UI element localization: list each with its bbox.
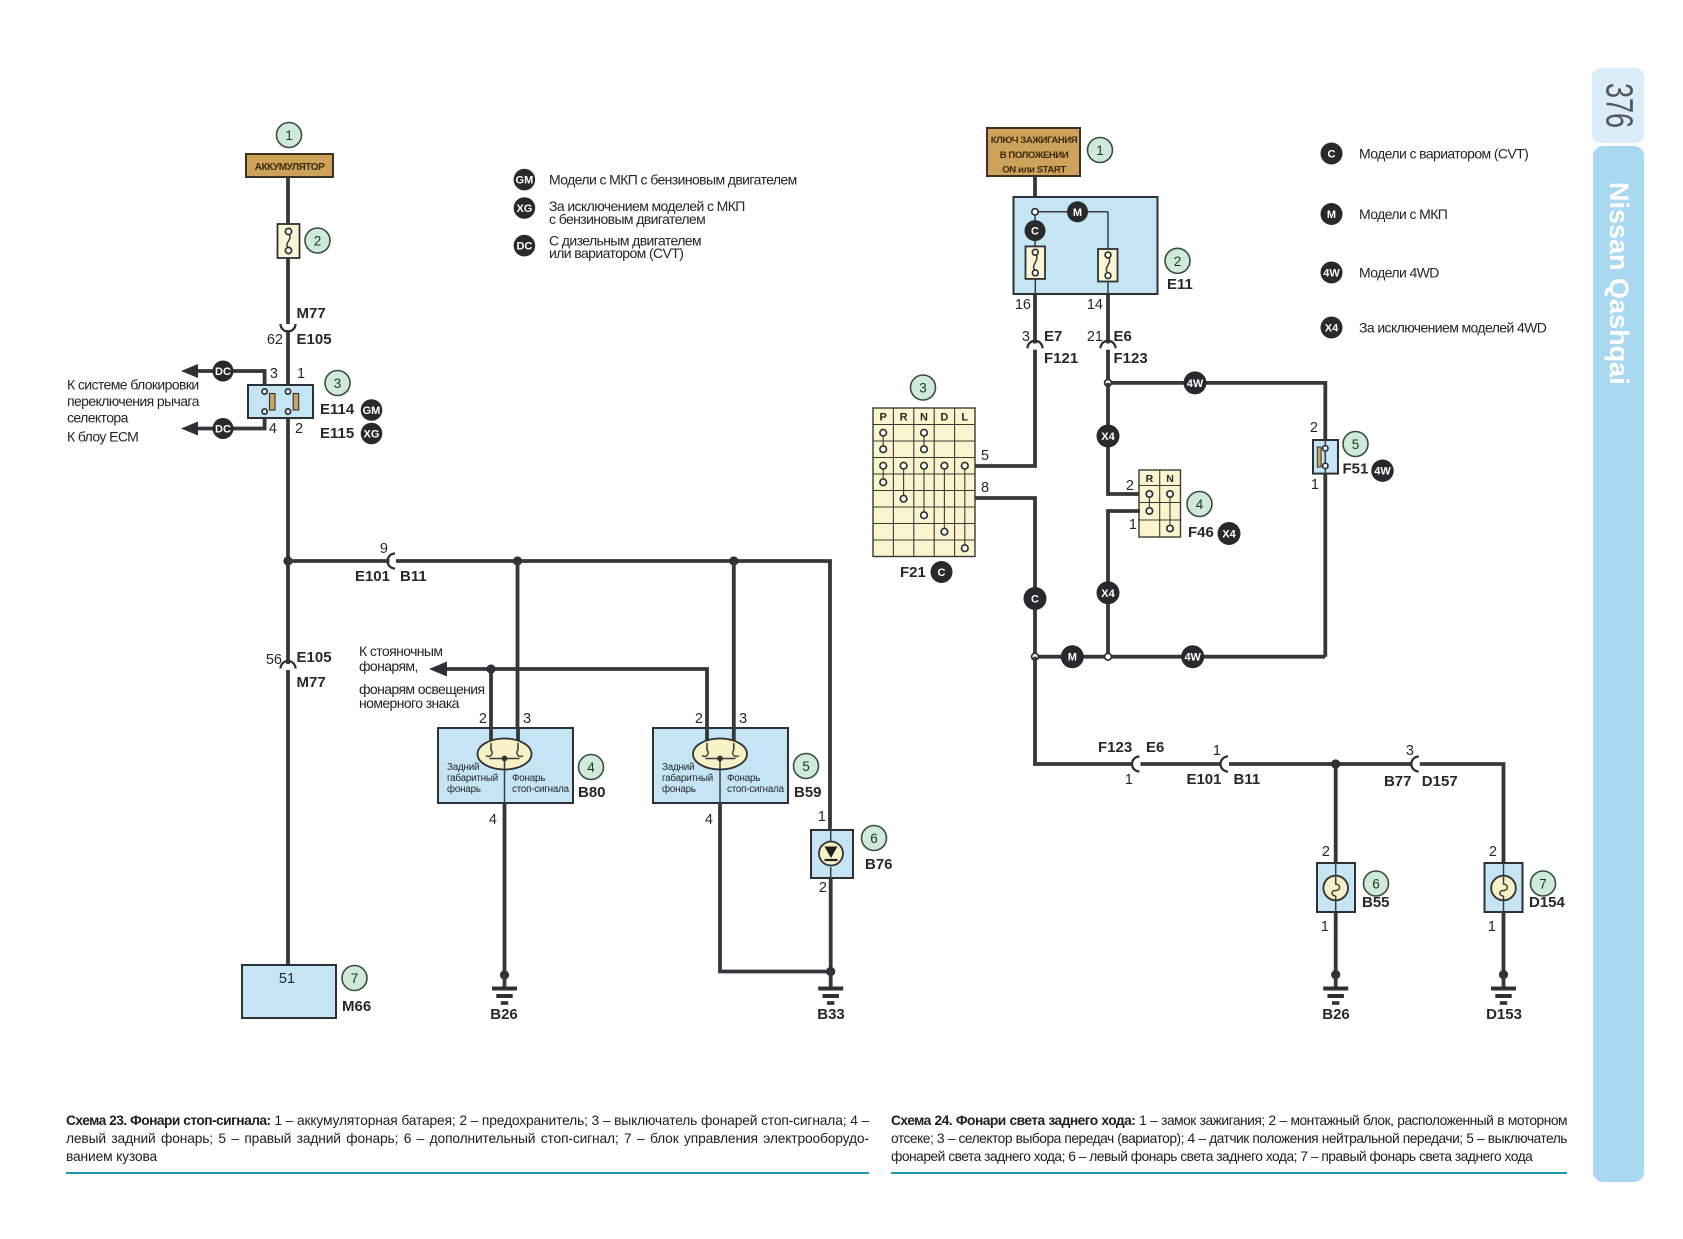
svg-text:К системе блокировки: К системе блокировки — [67, 377, 199, 393]
svg-text:62: 62 — [267, 332, 283, 348]
svg-text:N: N — [920, 412, 928, 424]
svg-text:1: 1 — [1321, 919, 1329, 935]
svg-text:2: 2 — [1126, 478, 1134, 494]
svg-text:4W: 4W — [1184, 652, 1201, 664]
svg-text:1: 1 — [1311, 477, 1319, 493]
svg-text:К блоу ЕСМ: К блоу ЕСМ — [67, 429, 138, 445]
svg-text:D157: D157 — [1422, 773, 1458, 790]
svg-text:ON или START: ON или START — [1002, 165, 1066, 176]
svg-text:или вариатором (CVT): или вариатором (CVT) — [549, 245, 683, 261]
svg-text:R: R — [900, 412, 908, 424]
svg-text:R: R — [1146, 473, 1154, 485]
svg-text:GM: GM — [363, 405, 381, 417]
svg-text:АККУМУЛЯТОР: АККУМУЛЯТОР — [255, 162, 325, 173]
svg-text:К стояночным: К стояночным — [359, 643, 442, 659]
svg-text:3: 3 — [523, 711, 531, 727]
svg-text:Задний: Задний — [662, 762, 694, 773]
svg-text:B26: B26 — [1322, 1006, 1350, 1023]
svg-text:F21: F21 — [900, 564, 926, 581]
svg-text:F123: F123 — [1114, 350, 1148, 367]
svg-text:4: 4 — [269, 421, 277, 437]
svg-text:7: 7 — [1539, 877, 1547, 892]
svg-text:4W: 4W — [1187, 378, 1204, 390]
svg-text:3: 3 — [1406, 743, 1414, 759]
svg-text:4W: 4W — [1374, 466, 1391, 478]
svg-text:DC: DC — [215, 366, 231, 378]
svg-text:В ПОЛОЖЕНИИ: В ПОЛОЖЕНИИ — [1000, 150, 1069, 161]
svg-text:фонарь: фонарь — [662, 784, 696, 795]
svg-text:3: 3 — [739, 711, 747, 727]
svg-text:5: 5 — [802, 759, 810, 774]
svg-text:Фонарь: Фонарь — [512, 773, 545, 784]
svg-text:X4: X4 — [1222, 529, 1236, 541]
svg-text:2: 2 — [1322, 844, 1330, 860]
svg-text:C: C — [1031, 226, 1039, 238]
svg-text:2: 2 — [1489, 844, 1497, 860]
svg-text:E101: E101 — [355, 568, 390, 585]
svg-text:2: 2 — [295, 421, 303, 437]
svg-text:1: 1 — [1488, 919, 1496, 935]
svg-text:стоп-сигнала: стоп-сигнала — [512, 784, 570, 795]
svg-text:2: 2 — [1174, 254, 1182, 269]
svg-text:B26: B26 — [490, 1006, 518, 1023]
svg-text:3: 3 — [1022, 329, 1030, 345]
svg-text:M77: M77 — [297, 674, 326, 691]
svg-text:4: 4 — [705, 812, 713, 828]
svg-text:2: 2 — [1310, 420, 1318, 436]
svg-text:L: L — [961, 412, 968, 424]
svg-text:фонарь: фонарь — [447, 784, 481, 795]
svg-text:E6: E6 — [1146, 739, 1164, 756]
svg-text:2: 2 — [695, 711, 703, 727]
svg-text:КЛЮЧ ЗАЖИГАНИЯ: КЛЮЧ ЗАЖИГАНИЯ — [991, 135, 1078, 146]
svg-text:габаритный: габаритный — [662, 773, 713, 784]
svg-text:3: 3 — [919, 381, 927, 396]
svg-text:XG: XG — [364, 429, 380, 441]
svg-text:8: 8 — [981, 480, 989, 496]
svg-text:P: P — [880, 412, 887, 424]
svg-text:E105: E105 — [297, 331, 332, 348]
svg-text:14: 14 — [1087, 297, 1103, 313]
svg-text:4: 4 — [1196, 497, 1204, 512]
svg-text:переключения рычага: переключения рычага — [67, 393, 200, 409]
svg-text:фонарям,: фонарям, — [359, 658, 418, 674]
svg-text:F121: F121 — [1044, 350, 1078, 367]
svg-text:1: 1 — [1096, 143, 1104, 158]
svg-text:D: D — [940, 412, 948, 424]
svg-text:селектора: селектора — [67, 410, 129, 426]
svg-text:M: M — [1073, 207, 1082, 219]
svg-text:2: 2 — [819, 880, 827, 896]
svg-text:4: 4 — [587, 760, 595, 775]
svg-text:1: 1 — [1125, 772, 1133, 788]
svg-text:X4: X4 — [1101, 588, 1115, 600]
svg-text:3: 3 — [270, 366, 278, 382]
svg-text:B11: B11 — [1234, 771, 1261, 788]
svg-text:C: C — [1328, 149, 1336, 161]
svg-text:B76: B76 — [865, 856, 893, 873]
svg-text:M77: M77 — [297, 305, 326, 322]
svg-text:E114: E114 — [320, 401, 355, 418]
svg-text:C: C — [1031, 594, 1039, 606]
svg-text:X4: X4 — [1325, 323, 1339, 335]
svg-text:5: 5 — [981, 448, 989, 464]
svg-text:E7: E7 — [1044, 328, 1062, 345]
svg-text:2: 2 — [479, 711, 487, 727]
svg-text:B11: B11 — [400, 568, 427, 585]
svg-text:5: 5 — [1352, 437, 1360, 452]
svg-text:XG: XG — [516, 203, 532, 215]
svg-text:Задний: Задний — [447, 762, 479, 773]
svg-text:E11: E11 — [1167, 276, 1193, 293]
svg-text:E105: E105 — [297, 649, 332, 666]
svg-text:7: 7 — [351, 971, 359, 986]
svg-text:1: 1 — [297, 366, 305, 382]
svg-text:номерного знака: номерного знака — [359, 695, 460, 711]
svg-text:E115: E115 — [320, 425, 354, 442]
svg-text:DC: DC — [215, 424, 231, 436]
svg-text:16: 16 — [1015, 297, 1031, 313]
svg-text:B55: B55 — [1362, 894, 1390, 911]
svg-text:1: 1 — [1129, 517, 1137, 533]
svg-text:За исключением моделей 4WD: За исключением моделей 4WD — [1359, 320, 1547, 336]
svg-text:56: 56 — [266, 652, 282, 668]
svg-text:B80: B80 — [578, 784, 606, 801]
svg-text:F123: F123 — [1098, 739, 1132, 756]
svg-text:Модели 4WD: Модели 4WD — [1359, 265, 1439, 281]
svg-text:2: 2 — [314, 234, 322, 249]
svg-text:C: C — [938, 567, 946, 579]
svg-text:51: 51 — [279, 971, 295, 987]
svg-text:M: M — [1068, 652, 1077, 664]
svg-text:D154: D154 — [1529, 894, 1566, 911]
svg-text:Модели с МКП с бензиновым двиг: Модели с МКП с бензиновым двигателем — [549, 172, 797, 188]
svg-text:F51: F51 — [1343, 461, 1369, 478]
svg-text:Модели с МКП: Модели с МКП — [1359, 206, 1447, 222]
svg-text:Фонарь: Фонарь — [727, 773, 760, 784]
svg-text:6: 6 — [870, 831, 878, 846]
svg-text:E101: E101 — [1186, 771, 1221, 788]
svg-text:M66: M66 — [342, 998, 371, 1015]
svg-text:1: 1 — [818, 809, 826, 825]
svg-text:N: N — [1166, 473, 1174, 485]
svg-text:4: 4 — [489, 812, 497, 828]
svg-text:GM: GM — [516, 175, 534, 187]
svg-text:B59: B59 — [794, 784, 822, 801]
svg-text:21: 21 — [1087, 329, 1103, 345]
svg-text:B33: B33 — [817, 1006, 845, 1023]
svg-text:1: 1 — [285, 128, 293, 143]
svg-text:DC: DC — [516, 241, 532, 253]
svg-text:F46: F46 — [1188, 524, 1214, 541]
svg-text:с бензиновым двигателем: с бензиновым двигателем — [549, 211, 705, 227]
svg-text:Модели с вариатором (CVT): Модели с вариатором (CVT) — [1359, 146, 1528, 162]
svg-text:M: M — [1327, 209, 1336, 221]
svg-text:стоп-сигнала: стоп-сигнала — [727, 784, 785, 795]
svg-text:3: 3 — [334, 376, 342, 391]
svg-text:1: 1 — [1213, 743, 1221, 759]
svg-text:габаритный: габаритный — [447, 773, 498, 784]
svg-text:E6: E6 — [1114, 328, 1132, 345]
svg-text:4W: 4W — [1323, 268, 1340, 280]
svg-text:X4: X4 — [1101, 431, 1115, 443]
svg-text:D153: D153 — [1486, 1006, 1522, 1023]
svg-text:6: 6 — [1372, 877, 1380, 892]
svg-text:9: 9 — [380, 541, 388, 557]
svg-text:B77: B77 — [1384, 773, 1412, 790]
